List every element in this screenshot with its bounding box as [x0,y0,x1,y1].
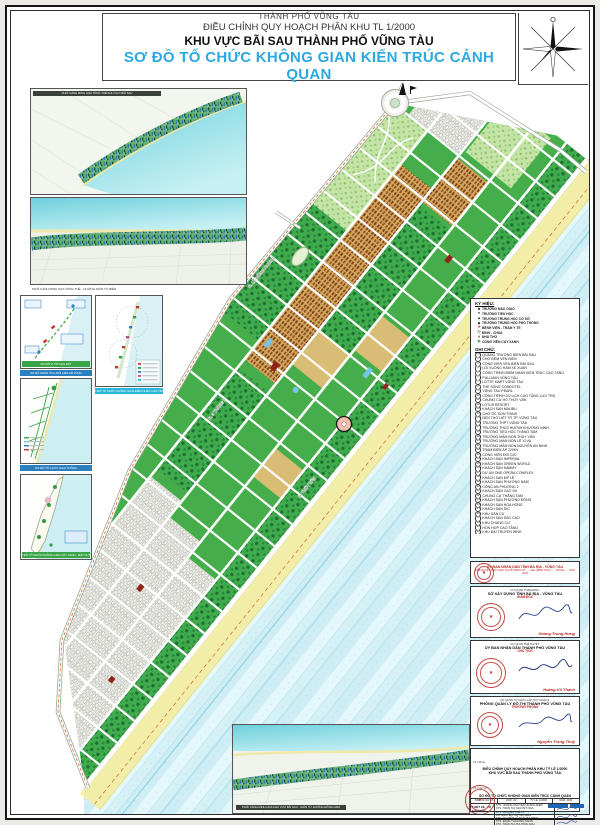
compass-area [518,13,588,85]
inset-location-diagram: SƠ ĐỒ VỊ TRÍ KHU ĐẤT [20,295,92,369]
drawing-title-block: Tên đồ án: ĐIỀU CHỈNH QUY HOẠCH PHÂN KHU… [470,748,580,812]
year: NĂM: 2023 [553,799,579,803]
legend-box: KÝ HIỆU: ■TRƯỜNG MẪU GIÁO ●TRƯỜNG TIỂU H… [470,298,580,558]
inset5-caption: SƠ ĐỒ TỔ CHỨC GIAO THÔNG [20,465,92,471]
inset4-caption: SƠ ĐỒ TỔ CHỨC KHÔNG GIAN ĐIỂM NHẤN CAO T… [95,388,163,394]
inset1-caption: PHỐI CẢNH MINH HỌA TỔNG THỂ KHU VỰC BÃI … [33,91,161,96]
compass-rose-icon [519,13,587,83]
ubnd-stamp [474,563,494,583]
bottom-inset-caption: PHỐI CẢNH MINH HỌA KHU VỰC BÃI SAU - NHÌ… [236,805,346,810]
ubnd-approval-bar: ỦY BAN NHÂN DÂN TỈNH BÀ RỊA - VŨNG TÀU P… [470,561,580,584]
approval-role: CHỦ TỊCH [471,649,579,653]
sheet-title-block: THÀNH PHỐ VŨNG TÀU ĐIỀU CHỈNH QUY HOẠCH … [102,13,516,81]
approval-block-ubnd-tp: CƠ QUAN PHÊ DUYỆT: ỦY BAN NHÂN DÂN THÀNH… [470,640,580,694]
signature-icon [517,657,573,679]
approval-role: TRƯỞNG PHÒNG [471,705,579,709]
inset3-inner-caption: SƠ ĐỒ VỊ TRÍ KHU ĐẤT [22,361,90,367]
approval-signer-name: Nguyễn Trọng Thủy [471,739,575,744]
approval-stamp [477,712,503,738]
inset6-caption: SƠ ĐỒ TỔ CHỨC KHÔNG GIAN CÂY XANH - MẶT … [22,552,90,558]
approval-signer-name: Hoàng Trung Hưng [471,631,575,636]
approval-block-qldt: CƠ QUAN TỔ CHỨC LẬP QUY HOẠCH: PHÒNG QUẢ… [470,696,580,746]
beach-landmark-circle [337,417,352,432]
paper-size: KHỔ: A0 [498,799,525,803]
approval-stamp [476,658,506,688]
legend-note: KHU ĐÀI TRUYỀN HÌNH [475,530,579,535]
legend-symbol-row: ▣CÔNG VIÊN CÂY XANH [476,340,579,345]
title-area: KHU VỰC BÃI SAU THÀNH PHỐ VŨNG TÀU [184,34,433,48]
approval-role: GIÁM ĐỐC [471,595,579,599]
inset3-caption: SƠ ĐỒ PHÂN TÍCH MỐI LIÊN HỆ VÙNG [20,370,92,376]
approval-block-sxd: CƠ QUAN THẨM ĐỊNH: SỞ XÂY DỰNG TỈNH BÀ R… [470,586,580,638]
legend-notes-list: QUẢNG TRƯỜNG BIỂN BÃI SAU CHỢ ĐÊM VEN BI… [475,353,579,535]
title-city: THÀNH PHỐ VŨNG TÀU [258,12,359,21]
title-project: ĐIỀU CHỈNH QUY HOẠCH PHÂN KHU TL 1/2000 [203,22,415,33]
inset-perspective-bottom: PHỐI CẢNH MINH HỌA KHU VỰC BÃI SAU - NHÌ… [232,724,470,814]
inset-highrise-diagram [95,295,163,387]
signature-icon [517,603,573,625]
inset-greenery-diagram: SƠ ĐỒ TỔ CHỨC KHÔNG GIAN CÂY XANH - MẶT … [20,474,92,560]
inset-perspective-2 [30,197,247,285]
signature-icon [517,713,573,733]
inset-perspective-1: PHỐI CẢNH MINH HỌA TỔNG THỂ KHU VỰC BÃI … [30,88,247,195]
inset-traffic-diagram [20,378,92,464]
legend-symbols-title: KÝ HIỆU: [475,301,579,306]
legend-notes-title: GHI CHÚ: [475,347,579,352]
company-stamp [465,785,495,815]
title-drawing: SƠ ĐỒ TỔ CHỨC KHÔNG GIAN KIẾN TRÚC CẢNH … [103,49,515,83]
inset2-caption: PHỐI CẢNH MINH HỌA TỔNG THỂ - HƯỚNG NHÌN… [32,287,232,291]
titleblock-chip [570,804,584,808]
project-label: Tên đồ án: [473,761,486,764]
team-names: KTS. HOÀNG NGUYỄN HOÀNG ĐIỀN KTS. TRẦN T… [495,804,555,825]
approval-stamp [477,603,505,631]
titleblock-chip [548,804,568,808]
scale: TỶ LỆ: 1/2000 [526,799,553,803]
